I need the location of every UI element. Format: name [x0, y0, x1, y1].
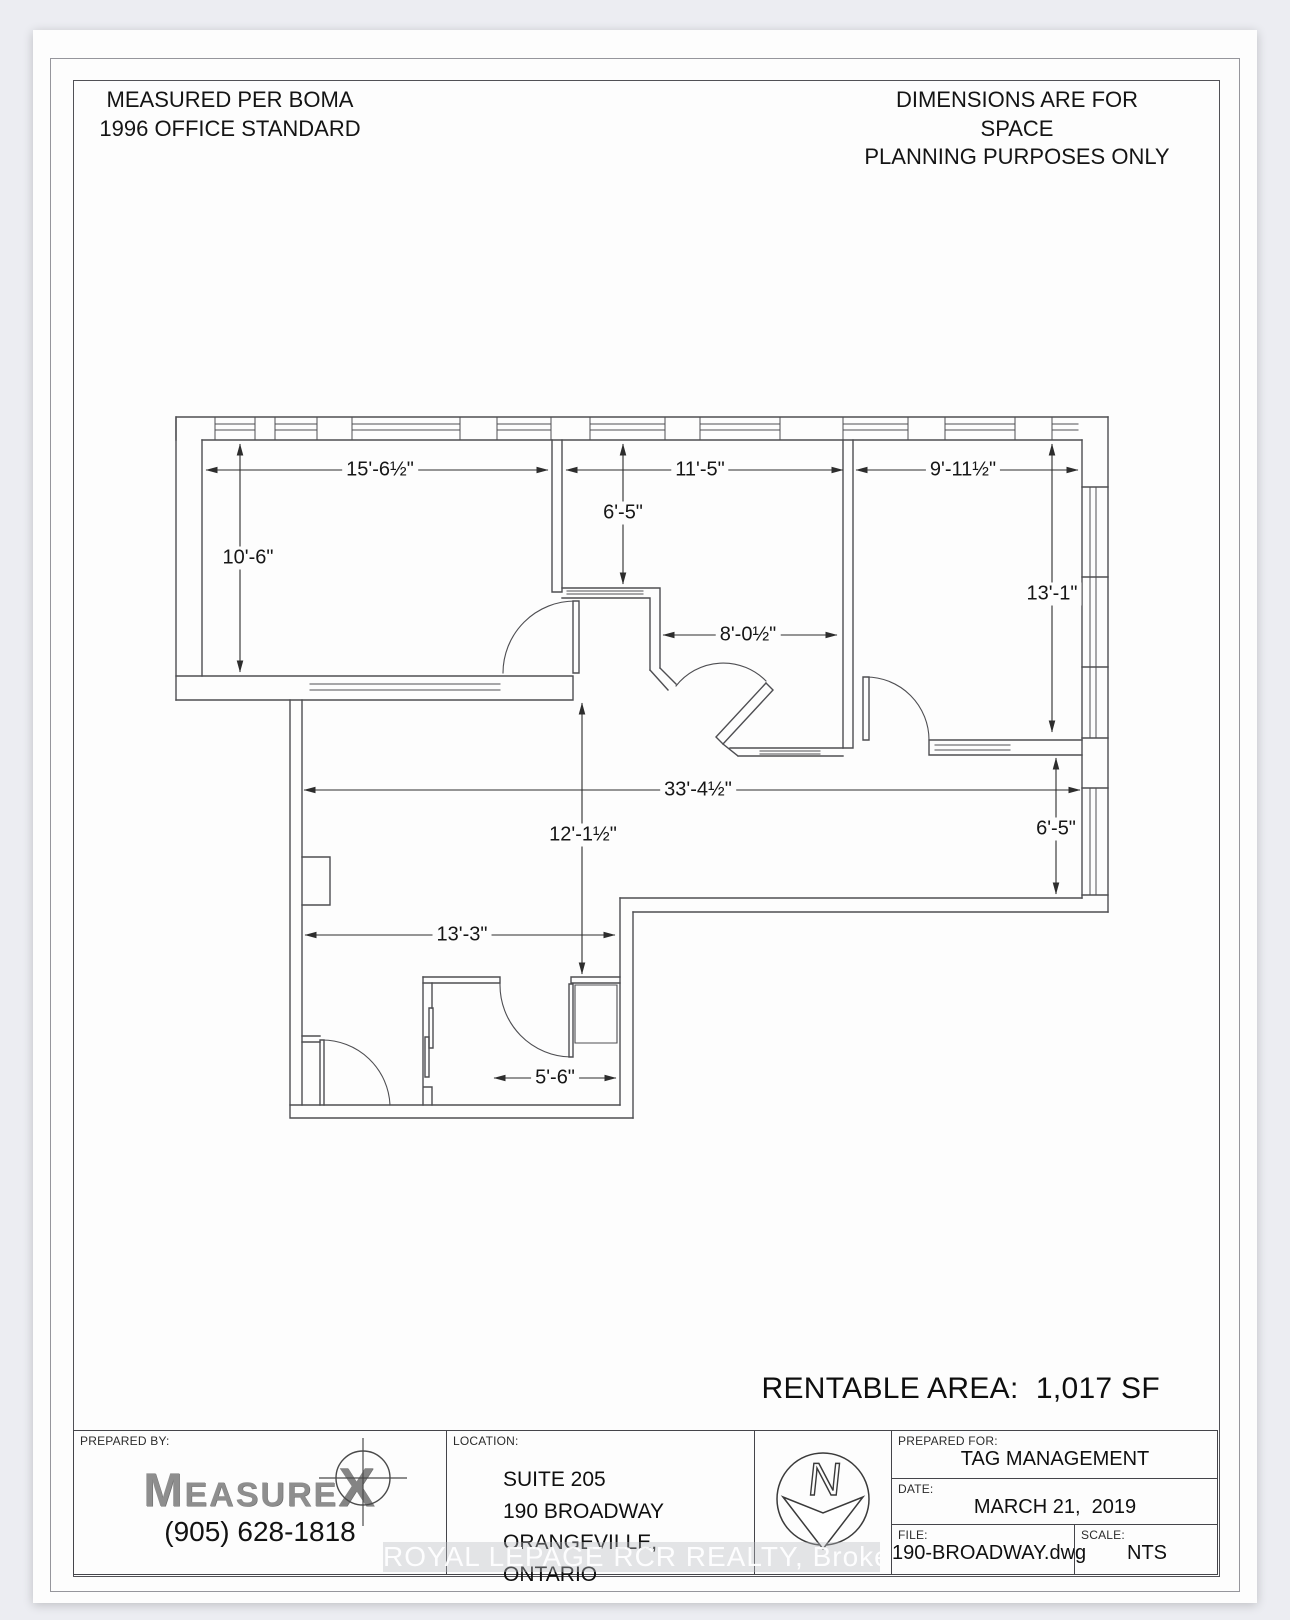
floor-plan	[33, 30, 1257, 1603]
north-letter: N	[806, 1453, 845, 1505]
date-value: MARCH 21, 2019	[892, 1496, 1218, 1519]
project-info-cell: PREPARED FOR: TAG MANAGEMENT DATE: MARCH…	[891, 1431, 1218, 1574]
address-line: 190 BROADWAY	[503, 1496, 754, 1528]
location-label: LOCATION:	[447, 1431, 754, 1448]
prepared-for-row: PREPARED FOR: TAG MANAGEMENT	[892, 1431, 1218, 1478]
logo-letter-x: X	[338, 1456, 377, 1518]
address-line: SUITE 205	[503, 1464, 754, 1496]
logo-word: EASURE	[184, 1476, 338, 1514]
rentable-area-text: RENTABLE AREA: 1,017 SF	[633, 1372, 1160, 1406]
page: MEASURED PER BOMA 1996 OFFICE STANDARD D…	[33, 30, 1257, 1603]
scale-cell: SCALE: NTS	[1074, 1525, 1219, 1575]
file-label: FILE:	[892, 1525, 1074, 1542]
logo-letter-m: M	[143, 1463, 184, 1516]
dimension-label: 11'-5"	[671, 459, 728, 482]
dimension-label: 10'-6"	[219, 547, 278, 570]
prepared-by-label: PREPARED BY:	[74, 1431, 446, 1448]
dimension-label: 15'-6½"	[342, 459, 418, 482]
measurex-logo: MEASUREX (905) 628-1818	[74, 1460, 446, 1548]
dimension-label: 6'-5"	[599, 502, 647, 525]
document-page-background: MEASURED PER BOMA 1996 OFFICE STANDARD D…	[0, 0, 1290, 1620]
dimension-label: 8'-0½"	[716, 624, 781, 647]
file-value: 190-BROADWAY.dwg	[892, 1542, 1074, 1565]
scale-label: SCALE:	[1075, 1525, 1219, 1542]
dimension-label: 9'-11½"	[926, 459, 1000, 482]
prepared-for-label: PREPARED FOR:	[892, 1431, 1218, 1448]
dimension-lines	[206, 444, 1080, 1078]
scale-value: NTS	[1075, 1542, 1219, 1565]
dimension-label: 12'-1½"	[545, 824, 621, 847]
date-label: DATE:	[892, 1479, 1218, 1496]
dimension-label: 13'-3"	[433, 924, 492, 947]
prepared-for-value: TAG MANAGEMENT	[892, 1448, 1218, 1471]
file-cell: FILE: 190-BROADWAY.dwg	[892, 1525, 1074, 1575]
date-row: DATE: MARCH 21, 2019	[892, 1478, 1218, 1524]
dimension-label: 5'-6"	[531, 1067, 579, 1090]
watermark: ROYAL LEPAGE RCR REALTY, Brokerage	[383, 1542, 880, 1572]
dimension-label: 6'-5"	[1032, 818, 1080, 841]
dimension-label: 13'-1"	[1023, 583, 1082, 606]
file-scale-row: FILE: 190-BROADWAY.dwg SCALE: NTS	[892, 1524, 1218, 1575]
dimension-label: 33'-4½"	[660, 779, 736, 802]
